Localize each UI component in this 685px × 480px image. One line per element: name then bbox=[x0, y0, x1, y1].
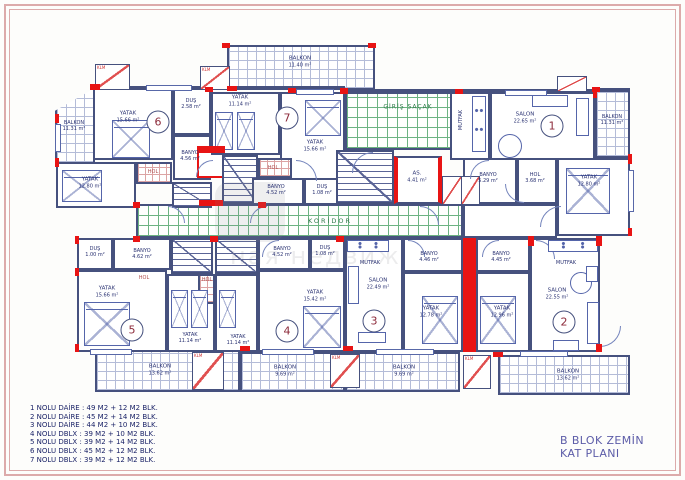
drawing-sheet: { "sheet": { "title_line1": "B BLOK ZEMİ… bbox=[0, 0, 685, 480]
label-dus-4: DUŞ1.08 m² bbox=[315, 245, 335, 258]
label-yatak-3: YATAK12.78 m² bbox=[420, 305, 443, 318]
klm-label: KLM bbox=[202, 68, 210, 72]
label-mutfak-2: MUTFAK bbox=[556, 260, 576, 266]
title-block: B BLOK ZEMİN KAT PLANI bbox=[560, 434, 644, 460]
legend-line-7: 7 NOLU DBLX : 39 M2 + 12 M2 BLK. bbox=[30, 456, 158, 465]
label-salon-3: SALON22.49 m² bbox=[367, 277, 390, 290]
threshold-box-3: KLM bbox=[463, 355, 491, 389]
label-banyo-7: BANYO4.52 m² bbox=[266, 184, 286, 197]
threshold-box-2: KLM bbox=[330, 354, 360, 388]
label-balkon-br: BALKON13.62 m² bbox=[557, 368, 580, 381]
service-shaft-1 bbox=[442, 176, 462, 205]
label-yatak-4a: YATAK15.42 m² bbox=[304, 289, 327, 302]
label-banyo-5: BANYO4.62 m² bbox=[132, 248, 152, 261]
legend-line-4: 4 NOLU DBLX : 39 M2 + 10 M2 BLK. bbox=[30, 430, 158, 439]
label-hol-7: HOL bbox=[268, 165, 278, 171]
entrance-canopy bbox=[345, 92, 460, 150]
legend-line-6: 6 NOLU DBLX : 45 M2 + 12 M2 BLK. bbox=[30, 447, 158, 456]
legend-line-5: 5 NOLU DBLX : 39 M2 + 14 M2 BLK. bbox=[30, 438, 158, 447]
unit-circle-7: 7 bbox=[276, 107, 299, 130]
label-balkon-bl: BALKON13.62 m² bbox=[149, 363, 172, 376]
label-banyo-6: BANYO4.56 m² bbox=[180, 150, 200, 163]
label-yatak-5b: YATAK11.14 m² bbox=[179, 332, 202, 345]
label-banyo-3: BANYO4.46 m² bbox=[419, 251, 439, 264]
label-hol-1: HOL3.68 m² bbox=[525, 172, 545, 185]
unit-circle-1: 1 bbox=[541, 115, 564, 138]
klm-label: KLM bbox=[332, 356, 340, 360]
label-dus-5: DUŞ1.00 m² bbox=[85, 246, 105, 259]
label-asansor: AS.4.41 m² bbox=[407, 170, 427, 183]
label-dus-6: DUŞ2.58 m² bbox=[181, 98, 201, 111]
roof-box-1: KLM bbox=[95, 64, 130, 90]
label-banyo-2: BANYO4.45 m² bbox=[491, 251, 511, 264]
label-salon-2: SALON22.55 m² bbox=[546, 287, 569, 300]
label-yatak-6b: YATAK12.80 m² bbox=[79, 176, 102, 189]
klm-label: KLM bbox=[465, 357, 473, 361]
roof-box-3 bbox=[557, 76, 587, 92]
unit-circle-5: 5 bbox=[121, 319, 144, 342]
label-mutfak-1: MUTFAK bbox=[458, 110, 464, 130]
stair-apt5 bbox=[171, 238, 213, 274]
label-dus-7: DUŞ1.08 m² bbox=[312, 184, 332, 197]
label-balkon-bml: BALKON9.69 m² bbox=[274, 364, 296, 377]
klm-label: KLM bbox=[194, 354, 202, 358]
unit-circle-3: 3 bbox=[363, 310, 386, 333]
room-dus-6 bbox=[173, 88, 211, 135]
legend-line-1: 1 NOLU DAİRE : 49 M2 + 12 M2 BLK. bbox=[30, 404, 158, 413]
unit-circle-6: 6 bbox=[147, 111, 170, 134]
corridor bbox=[136, 204, 463, 238]
label-mutfak-3: MUTFAK bbox=[360, 260, 380, 266]
label-salon-1: SALON22.65 m² bbox=[514, 111, 537, 124]
label-giris-sacak: GİRİŞ SAÇAK bbox=[383, 103, 432, 111]
service-shaft-2 bbox=[461, 176, 480, 205]
label-hol-5: HOL bbox=[139, 275, 149, 281]
label-balkon-bmr: BALKON9.69 m² bbox=[393, 364, 415, 377]
label-hol-6: HOL bbox=[148, 169, 158, 175]
stair-apt4 bbox=[215, 238, 258, 274]
label-balkon-top: BALKON11.40 m² bbox=[289, 55, 312, 68]
klm-label: KLM bbox=[97, 66, 105, 70]
title-line-1: B BLOK ZEMİN bbox=[560, 434, 644, 447]
threshold-box-1: KLM bbox=[192, 352, 224, 390]
label-yatak-2: YATAK12.96 m² bbox=[491, 305, 514, 318]
label-banyo-1: BANYO5.29 m² bbox=[478, 172, 498, 185]
legend-line-2: 2 NOLU DAİRE : 45 M2 + 14 M2 BLK. bbox=[30, 413, 158, 422]
legend: 1 NOLU DAİRE : 49 M2 + 12 M2 BLK. 2 NOLU… bbox=[30, 404, 158, 464]
label-balkon-right: BALKON11.31 m² bbox=[601, 114, 624, 127]
outer-wall-top-right bbox=[345, 89, 630, 92]
label-yatak-4b: YATAK11.14 m² bbox=[227, 334, 250, 347]
label-banyo-4: BANYO4.52 m² bbox=[272, 246, 292, 259]
unit-circle-4: 4 bbox=[276, 320, 299, 343]
label-hol-4: HOL bbox=[202, 277, 212, 283]
structural-shaft-red bbox=[463, 238, 476, 352]
unit-circle-2: 2 bbox=[553, 311, 576, 334]
label-yatak-6: YATAK15.66 m² bbox=[117, 110, 140, 123]
label-yatak-5a: YATAK15.66 m² bbox=[96, 285, 119, 298]
label-balkon-left: BALKON11.31 m² bbox=[63, 120, 86, 133]
label-yatak-7b: YATAK15.66 m² bbox=[304, 139, 327, 152]
legend-line-3: 3 NOLU DAİRE : 44 M2 + 10 M2 BLK. bbox=[30, 421, 158, 430]
label-koridor: KORİDOR bbox=[308, 217, 352, 225]
label-yatak-7a: YATAK11.14 m² bbox=[229, 94, 252, 107]
title-line-2: KAT PLANI bbox=[560, 447, 644, 460]
label-yatak-1: YATAK12.80 m² bbox=[578, 174, 601, 187]
